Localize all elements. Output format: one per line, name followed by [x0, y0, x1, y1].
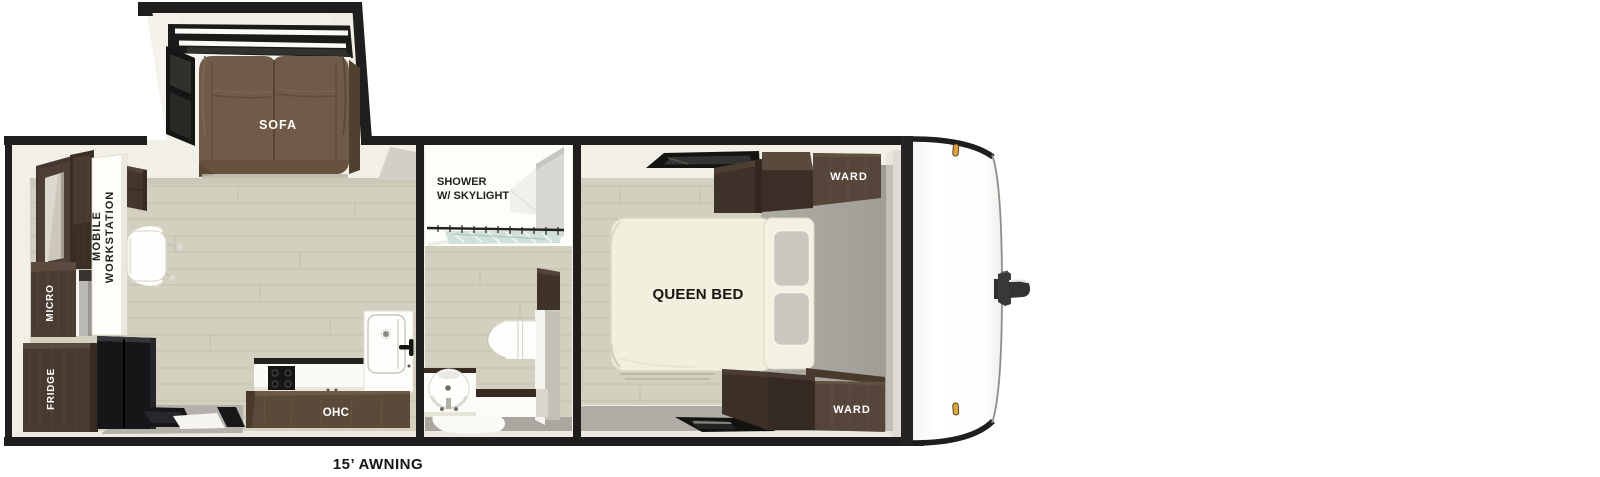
svg-text:MOBILE: MOBILE [91, 211, 103, 261]
svg-text:W/ SKYLIGHT: W/ SKYLIGHT [437, 190, 509, 202]
svg-text:WARD: WARD [830, 171, 868, 183]
svg-text:OHC: OHC [323, 407, 349, 419]
svg-text:WORKSTATION: WORKSTATION [104, 191, 116, 283]
svg-text:WARD: WARD [833, 404, 871, 416]
svg-text:SHOWER: SHOWER [437, 176, 487, 188]
svg-text:MICRO: MICRO [45, 284, 56, 321]
svg-text:FRIDGE: FRIDGE [46, 368, 57, 410]
svg-text:QUEEN BED: QUEEN BED [653, 286, 744, 303]
svg-text:15’ AWNING: 15’ AWNING [333, 456, 423, 473]
svg-text:SOFA: SOFA [259, 118, 297, 132]
